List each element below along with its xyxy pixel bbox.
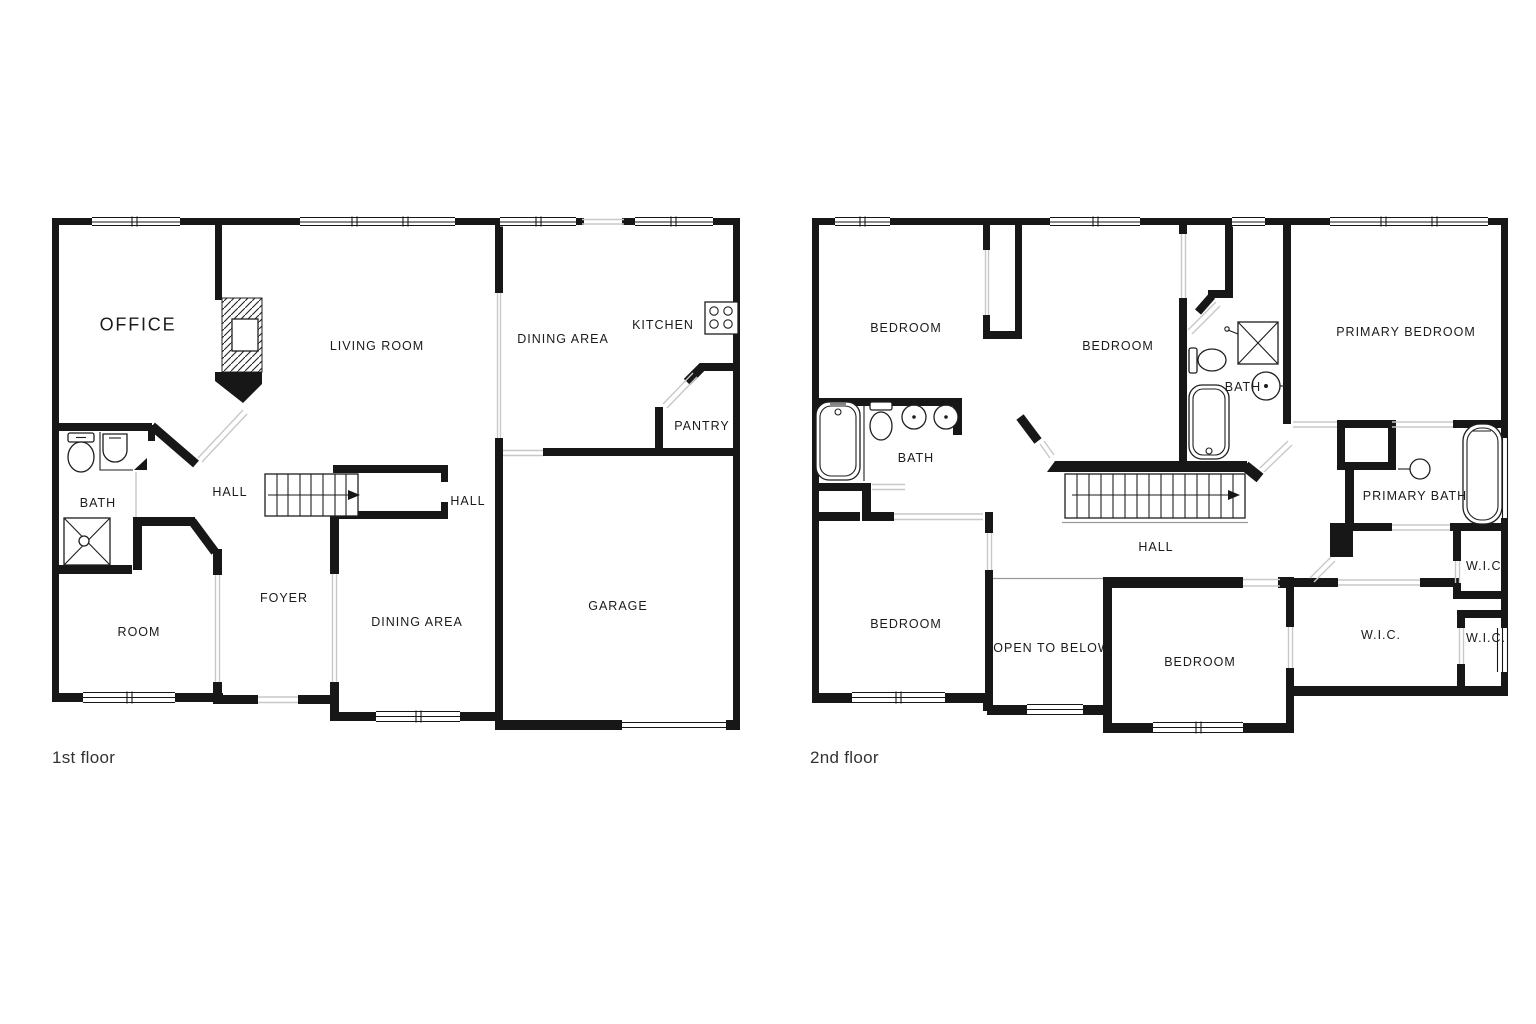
room-label-hall-lower: HALL	[450, 494, 485, 508]
first-floor-walls	[52, 218, 740, 730]
window	[83, 692, 175, 704]
room-label-dining-area-upper: DINING AREA	[517, 332, 609, 346]
first-floor-plan	[52, 217, 740, 731]
stairs	[265, 474, 360, 516]
room-label-bedroom-bottom-middle: BEDROOM	[1164, 655, 1236, 669]
second-floor-plan	[812, 217, 1509, 734]
toilet-icon	[870, 402, 892, 440]
stove-icon	[705, 302, 738, 334]
sink-icon	[1398, 459, 1430, 479]
room-label-hall-upper: HALL	[212, 485, 247, 499]
sink-icon	[100, 432, 133, 470]
door-swing-icon	[134, 458, 147, 470]
window	[835, 217, 890, 227]
room-label-bath-left: BATH	[898, 451, 934, 465]
room-label-bedroom-top-middle: BEDROOM	[1082, 339, 1154, 353]
room-label-bedroom-bottom-left: BEDROOM	[870, 617, 942, 631]
toilet-icon	[68, 433, 94, 472]
room-label-kitchen: KITCHEN	[632, 318, 694, 332]
room-label-foyer: FOYER	[260, 591, 308, 605]
second-floor-openings	[872, 234, 1464, 668]
window	[92, 217, 180, 227]
room-label-garage: GARAGE	[588, 599, 648, 613]
window	[635, 217, 713, 227]
room-label-primary-bedroom: PRIMARY BEDROOM	[1336, 325, 1476, 339]
shower-icon	[1225, 322, 1278, 364]
window	[500, 217, 576, 227]
floor-caption-2nd: 2nd floor	[810, 748, 879, 768]
room-label-bath: BATH	[80, 496, 116, 510]
window	[1050, 217, 1140, 227]
room-label-primary-bath: PRIMARY BATH	[1363, 489, 1467, 503]
room-label-hall: HALL	[1138, 540, 1173, 554]
bathtub-icon	[816, 402, 860, 480]
room-label-living-room: LIVING ROOM	[330, 339, 424, 353]
floor-plan-page: OFFICE LIVING ROOM DINING AREA KITCHEN P…	[0, 0, 1536, 1024]
window	[1330, 217, 1488, 227]
window	[1232, 217, 1265, 227]
room-label-room: ROOM	[118, 625, 161, 639]
room-label-dining-area-lower: DINING AREA	[371, 615, 463, 629]
window	[1027, 704, 1083, 716]
first-floor-openings	[136, 220, 726, 728]
floor-caption-1st: 1st floor	[52, 748, 115, 768]
room-label-office: OFFICE	[100, 315, 177, 336]
floor-plan-drawing	[0, 0, 1536, 1024]
room-label-pantry: PANTRY	[674, 419, 730, 433]
toilet-icon	[1189, 348, 1226, 373]
room-label-wic-large: W.I.C.	[1361, 628, 1401, 642]
shower-icon	[64, 518, 110, 565]
fireplace	[215, 298, 262, 403]
stairs	[1062, 474, 1248, 523]
room-label-wic-small-upper: W.I.C.	[1466, 559, 1506, 573]
bathtub-icon	[1189, 385, 1229, 459]
window	[376, 711, 460, 723]
room-label-bath-middle: BATH	[1225, 380, 1261, 394]
window	[852, 692, 945, 704]
room-label-bedroom-top-left: BEDROOM	[870, 321, 942, 335]
room-label-wic-small-lower: W.I.C.	[1466, 631, 1506, 645]
window	[1153, 722, 1243, 734]
bathtub-icon	[1463, 424, 1502, 524]
room-label-open-to-below: OPEN TO BELOW	[993, 641, 1110, 655]
window	[300, 217, 455, 227]
